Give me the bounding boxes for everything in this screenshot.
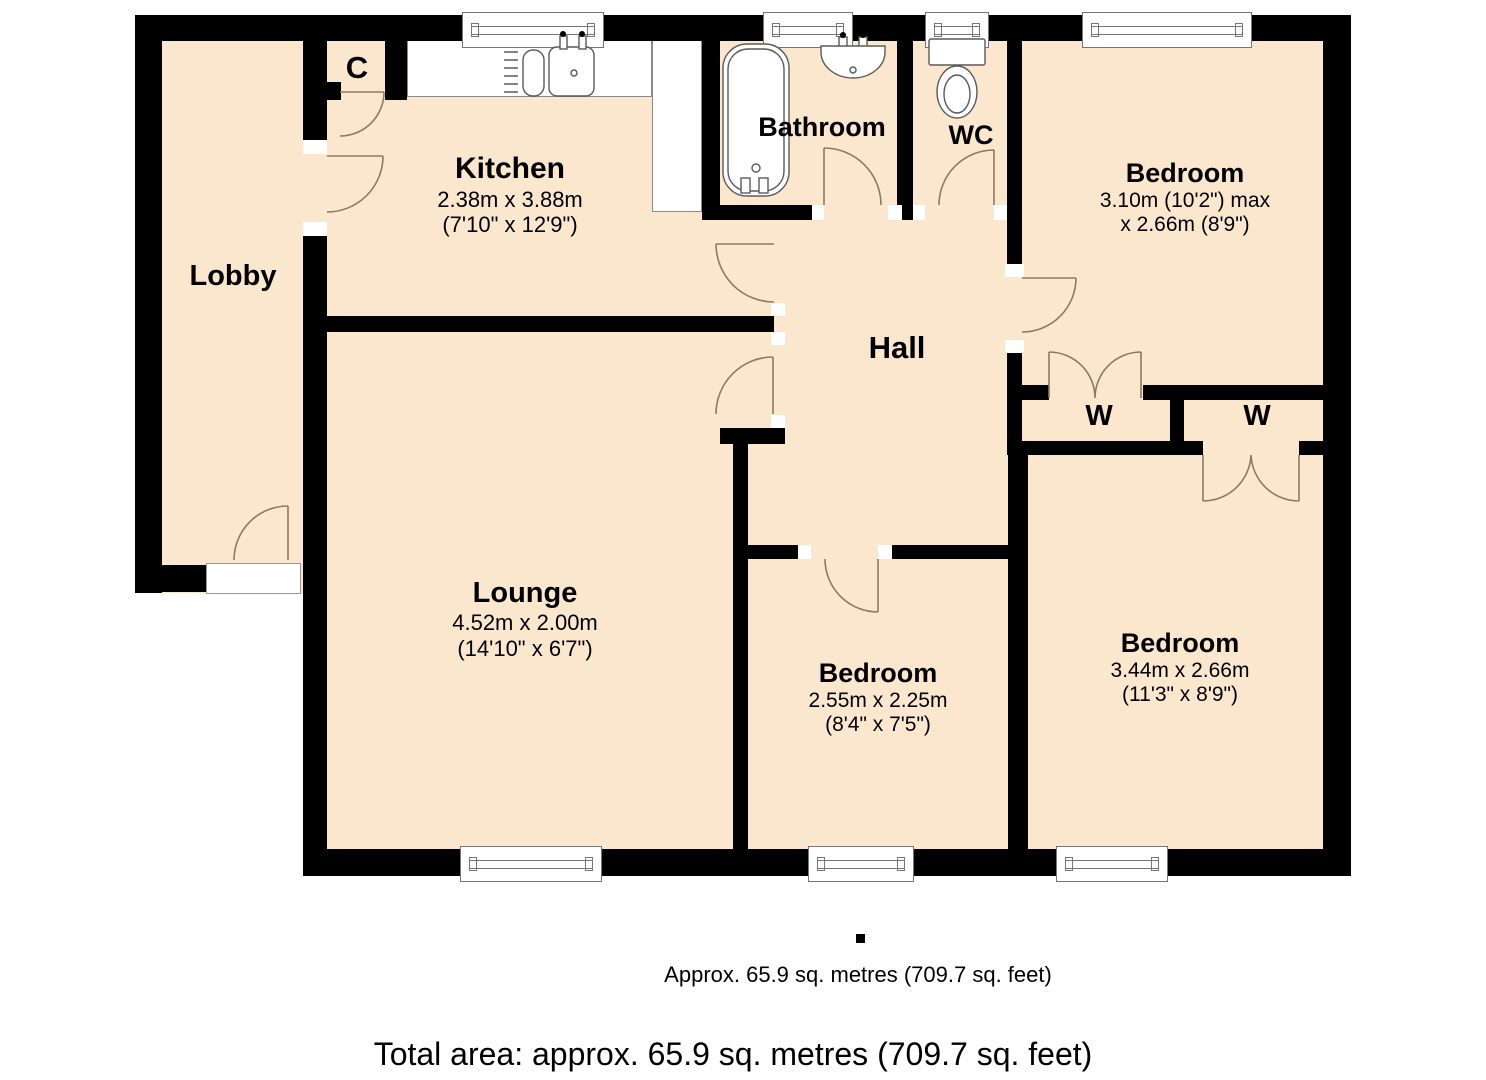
room-label-bedroom-bottom-right: Bedroom 3.44m x 2.66m (11'3" x 8'9") xyxy=(1111,628,1250,707)
bedroom-right-dims-imperial: (11'3" x 8'9") xyxy=(1111,683,1250,707)
bathroom-door-arc xyxy=(824,148,881,205)
bathroom-name: Bathroom xyxy=(758,112,886,143)
room-label-wc: WC xyxy=(949,120,994,151)
lobby-kitchen-door-arc xyxy=(327,156,383,212)
caption-marker xyxy=(856,934,865,943)
kitchen-name: Kitchen xyxy=(437,152,583,187)
room-label-wardrobe-right: W xyxy=(1243,400,1270,433)
room-label-lounge: Lounge 4.52m x 2.00m (14'10" x 6'7") xyxy=(452,577,598,661)
bedroom-right-name: Bedroom xyxy=(1111,628,1250,659)
hall-name: Hall xyxy=(869,330,926,366)
closet-c-door-arc xyxy=(340,92,384,136)
total-area-caption: Total area: approx. 65.9 sq. metres (709… xyxy=(374,1036,1093,1073)
bedroom-right-dims-metric: 3.44m x 2.66m xyxy=(1111,659,1250,683)
room-label-lobby: Lobby xyxy=(190,260,277,293)
bedroom-top-door-arc xyxy=(1022,278,1076,332)
wardrobe-right-name: W xyxy=(1243,400,1270,433)
room-label-wardrobe-left: W xyxy=(1085,400,1112,433)
bedroom-middle-dims-metric: 2.55m x 2.25m xyxy=(809,689,948,713)
wc-door-arc xyxy=(939,150,994,205)
bedroom-middle-name: Bedroom xyxy=(809,658,948,689)
bedroom-top-dims-metric: 3.10m (10'2") max xyxy=(1100,189,1270,213)
bedroom-top-name: Bedroom xyxy=(1100,158,1270,189)
kitchen-hall-door-arc xyxy=(716,244,774,302)
floor-plan: Lobby C Kitchen 2.38m x 3.88m (7'10" x 1… xyxy=(0,0,1486,1080)
toilet xyxy=(929,39,985,118)
area-note: Approx. 65.9 sq. metres (709.7 sq. feet) xyxy=(664,962,1052,988)
bedroom-middle-dims-imperial: (8'4" x 7'5") xyxy=(809,713,948,737)
bedroom-top-dims-imperial: x 2.66m (8'9") xyxy=(1100,213,1270,237)
wardrobe-right-doors-arc xyxy=(1203,455,1299,501)
lounge-dims-imperial: (14'10" x 6'7") xyxy=(452,636,598,661)
room-label-hall: Hall xyxy=(869,330,926,366)
wardrobe-left-name: W xyxy=(1085,400,1112,433)
wc-name: WC xyxy=(949,120,994,151)
kitchen-sink xyxy=(504,31,594,96)
room-label-closet-c: C xyxy=(346,50,368,86)
kitchen-dims-metric: 2.38m x 3.88m xyxy=(437,187,583,212)
closet-c-name: C xyxy=(346,50,368,86)
lounge-name: Lounge xyxy=(452,577,598,610)
bedroom-middle-door-arc xyxy=(825,559,878,612)
kitchen-dims-imperial: (7'10" x 12'9") xyxy=(437,212,583,237)
bathroom-sink xyxy=(821,32,885,78)
wardrobe-left-doors-arc xyxy=(1049,352,1141,398)
lounge-door-arc xyxy=(716,357,773,414)
room-label-kitchen: Kitchen 2.38m x 3.88m (7'10" x 12'9") xyxy=(437,152,583,237)
room-label-bedroom-top-right: Bedroom 3.10m (10'2") max x 2.66m (8'9") xyxy=(1100,158,1270,237)
entrance-door-arc xyxy=(234,506,288,560)
room-label-bathroom: Bathroom xyxy=(758,112,886,143)
lobby-name: Lobby xyxy=(190,260,277,293)
room-label-bedroom-middle: Bedroom 2.55m x 2.25m (8'4" x 7'5") xyxy=(809,658,948,737)
lounge-dims-metric: 4.52m x 2.00m xyxy=(452,610,598,635)
